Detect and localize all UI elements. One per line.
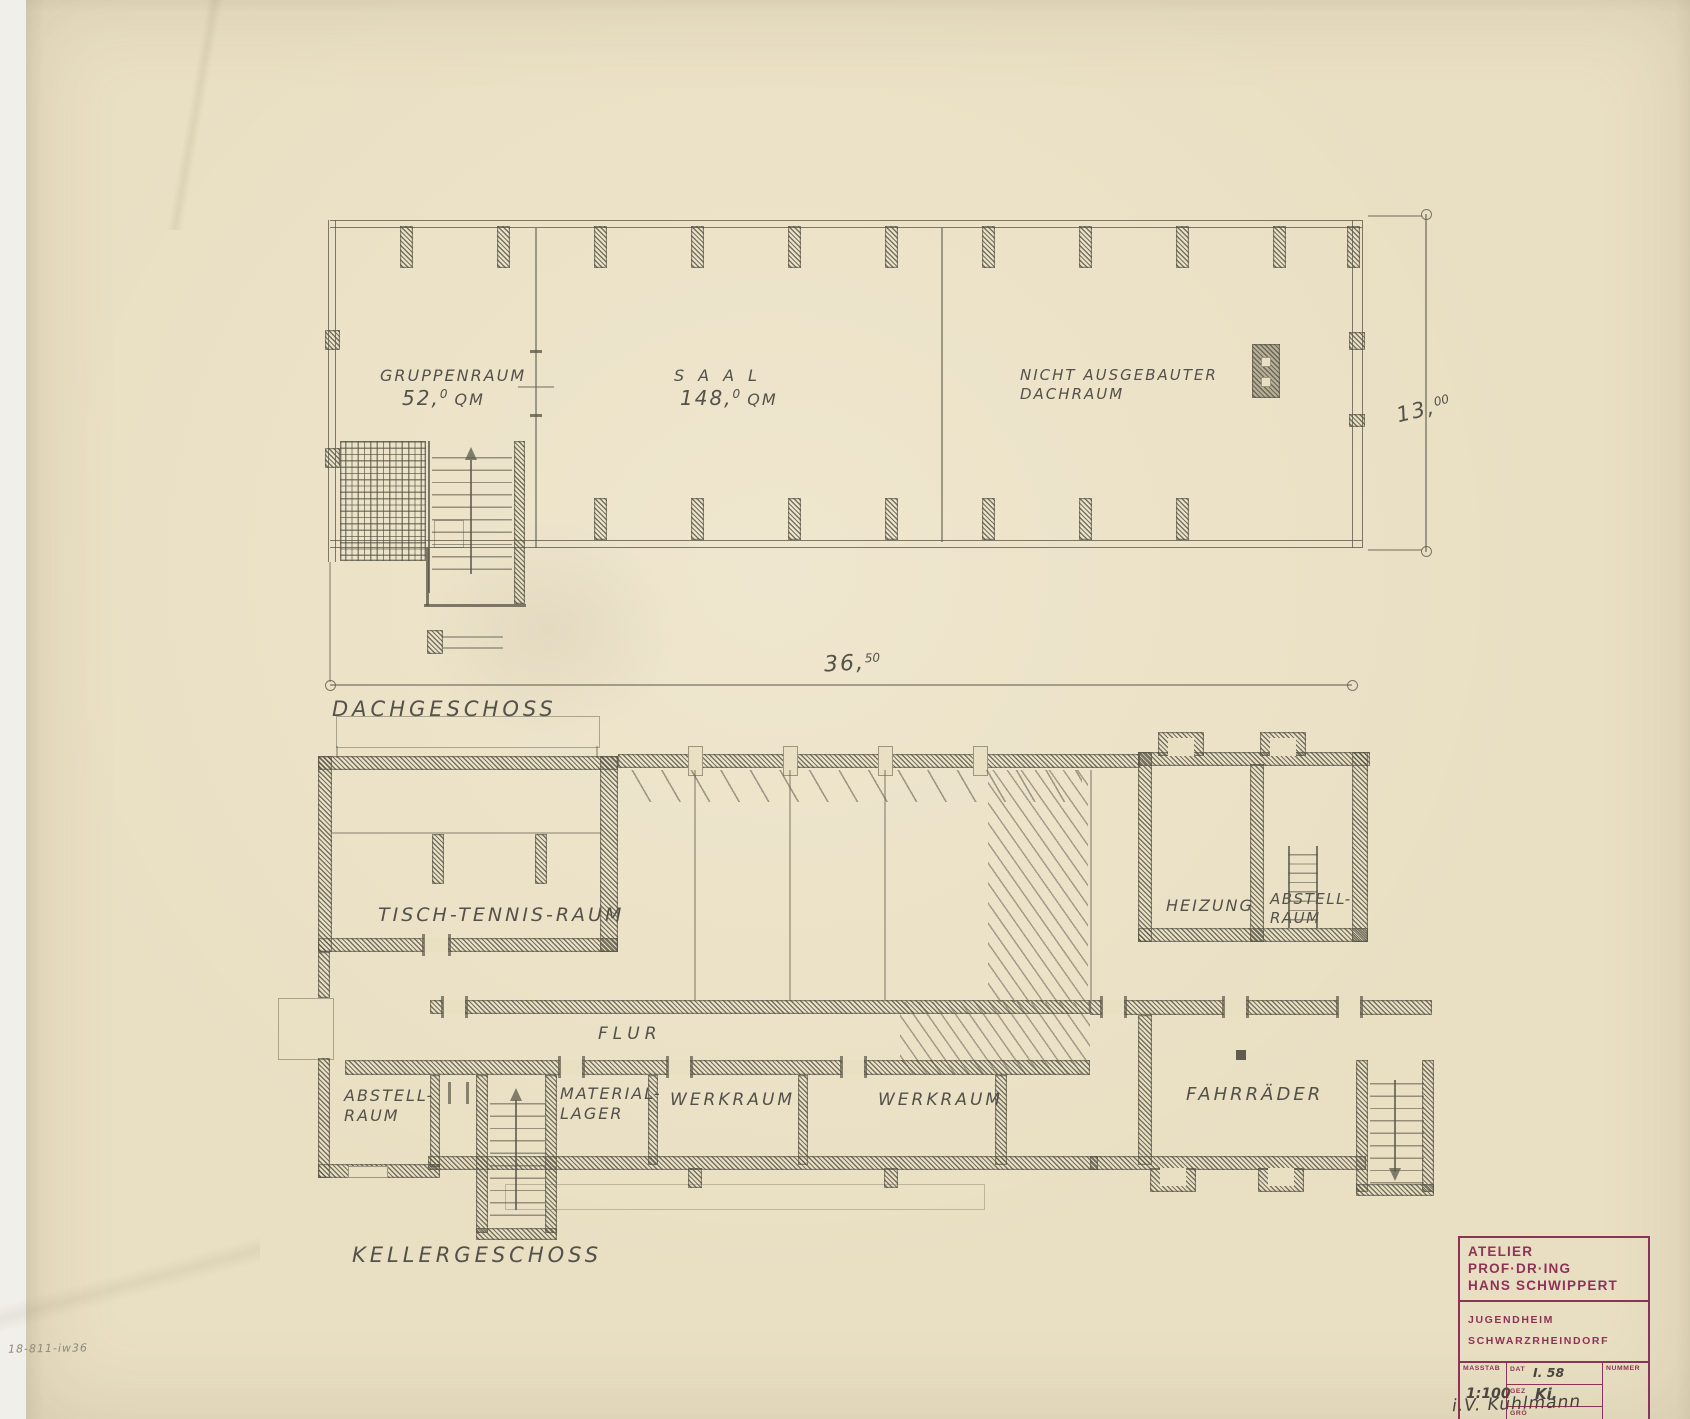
door-opening xyxy=(842,1060,864,1075)
column-line xyxy=(694,770,696,1000)
door-opening xyxy=(668,1060,690,1075)
dim-width-label: 36,50 xyxy=(823,649,881,679)
door-opening xyxy=(1224,1000,1246,1015)
stair-treads xyxy=(432,446,512,578)
door-opening xyxy=(424,938,448,952)
project-name: JUGENDHEIM SCHWARZRHEINDORF xyxy=(1460,1302,1648,1363)
pier xyxy=(325,330,340,350)
room-label-gruppenraum: GRUPPENRAUM 52,0 QM xyxy=(380,366,526,411)
studio-name: ATELIER PROF·DR·ING HANS SCHWIPPERT xyxy=(1460,1238,1648,1302)
window-opening xyxy=(348,1166,388,1178)
pier xyxy=(1176,226,1189,268)
door-opening xyxy=(1102,1000,1124,1015)
pier xyxy=(325,448,340,468)
ledger-line xyxy=(443,647,503,649)
wall xyxy=(1352,752,1368,942)
small-stair-rail xyxy=(1316,846,1318,928)
pier xyxy=(885,498,898,540)
wall xyxy=(318,952,330,998)
pier xyxy=(788,226,801,268)
door-mark xyxy=(1360,996,1363,1018)
dim-end-marker xyxy=(1421,209,1432,220)
door-mark xyxy=(448,1082,451,1104)
pier xyxy=(691,498,704,540)
pier xyxy=(400,226,413,268)
door-opening xyxy=(1338,1000,1360,1015)
pier xyxy=(885,226,898,268)
dim-ext-line xyxy=(329,562,331,682)
door-mark xyxy=(1100,996,1103,1018)
room-label-heizung: HEIZUNG xyxy=(1166,896,1254,916)
wall xyxy=(1138,752,1152,942)
light-well-inner xyxy=(1268,1168,1294,1186)
door-mark xyxy=(441,996,444,1018)
pier xyxy=(1176,498,1189,540)
room-label-material: MATERIAL- LAGER xyxy=(560,1084,662,1124)
wall xyxy=(1138,928,1368,942)
wall-tick xyxy=(530,350,542,353)
dim-end-marker xyxy=(1347,680,1358,691)
wall xyxy=(995,1075,1007,1165)
pier xyxy=(982,498,995,540)
light-well-inner xyxy=(1168,738,1194,756)
stair-wall xyxy=(476,1075,488,1233)
wall xyxy=(318,1058,330,1178)
door-mark xyxy=(1124,996,1127,1018)
upper-right-wall xyxy=(1352,220,1363,548)
room-label-dachraum: NICHT AUSGEBAUTER DACHRAUM xyxy=(1020,366,1218,404)
room-label-saal: SAAL 148,0 QM xyxy=(674,366,778,411)
title-block-stamp: ATELIER PROF·DR·ING HANS SCHWIPPERT JUGE… xyxy=(1458,1236,1650,1419)
stair-landing xyxy=(434,520,464,548)
pier xyxy=(1273,226,1286,268)
wall xyxy=(1138,1015,1152,1165)
partition-saal-dachraum xyxy=(941,228,943,542)
wall xyxy=(428,1156,1098,1170)
wall xyxy=(1090,1156,1366,1170)
stair-arrow-shaft xyxy=(470,460,472,574)
door-mark xyxy=(840,1056,843,1078)
stair-wall xyxy=(1356,1060,1368,1192)
archive-number: 18-811-iw36 xyxy=(8,1341,88,1355)
door-mark xyxy=(666,1056,669,1078)
dim-ext-line xyxy=(1368,549,1422,551)
beam-line xyxy=(332,832,600,834)
wall xyxy=(1090,1000,1432,1015)
door-mark xyxy=(558,1056,561,1078)
door-mark xyxy=(1246,996,1249,1018)
dat-label: DAT xyxy=(1507,1364,1525,1373)
door-mark xyxy=(465,996,468,1018)
room-label-abstell-left: ABSTELL- RAUM xyxy=(344,1086,434,1126)
stair-arrow-up-icon xyxy=(510,1088,522,1101)
wall xyxy=(345,1060,1090,1075)
wall xyxy=(798,1075,808,1165)
void-crosshatch xyxy=(340,441,426,561)
small-stair-treads xyxy=(1288,846,1318,926)
wall xyxy=(430,1000,1090,1014)
light-well-inner xyxy=(1270,738,1296,756)
chimney xyxy=(1252,344,1280,398)
projection-outline xyxy=(336,716,600,748)
dim-line-width xyxy=(330,684,1352,686)
projection-outline xyxy=(505,1184,985,1210)
pier xyxy=(788,498,801,540)
column-line xyxy=(1090,770,1092,1000)
chimney-flue xyxy=(1261,357,1271,367)
door-opening xyxy=(560,1060,582,1075)
stair-arrow-up-icon xyxy=(465,447,477,460)
dim-ext-line xyxy=(1368,215,1422,217)
pier xyxy=(594,226,607,268)
stair-wall xyxy=(514,441,525,604)
pier xyxy=(982,226,995,268)
dim-end-marker xyxy=(325,680,336,691)
small-stair-rail xyxy=(1288,846,1290,928)
room-label-fahrraeder: FAHRRÄDER xyxy=(1186,1084,1323,1107)
room-label-flur: FLUR xyxy=(598,1024,662,1045)
stair-wall xyxy=(1356,1184,1434,1196)
upper-top-wall xyxy=(330,220,1362,228)
stair-arrow-down-icon xyxy=(1389,1168,1401,1181)
room-label-werkraum-right: WERKRAUM xyxy=(878,1090,1003,1111)
door-mark xyxy=(582,1056,585,1078)
door-mark xyxy=(422,934,425,956)
stairwell-wall xyxy=(424,604,526,607)
nummer-label: NUMMER xyxy=(1603,1363,1648,1372)
door-mark xyxy=(466,1082,469,1104)
door-mark xyxy=(1222,996,1225,1018)
stair-wall xyxy=(1422,1060,1434,1192)
pier xyxy=(594,498,607,540)
room-label-werkraum-left: WERKRAUM xyxy=(670,1090,795,1111)
column-line xyxy=(789,770,791,1000)
column xyxy=(432,834,444,884)
ledger-line xyxy=(443,636,503,638)
dim-line-height xyxy=(1425,214,1427,552)
pier xyxy=(1349,332,1365,350)
column xyxy=(535,834,547,884)
dat-row: DAT I. 58 xyxy=(1507,1363,1602,1385)
wall xyxy=(318,756,332,952)
room-label-tischtennis: TISCH-TENNIS-RAUM xyxy=(378,904,624,928)
door-opening xyxy=(443,1000,465,1014)
pier xyxy=(497,226,510,268)
unexcavated-hatch xyxy=(988,770,1088,1002)
light-well-inner xyxy=(1160,1168,1186,1186)
pier xyxy=(1349,414,1365,427)
dim-end-marker xyxy=(1421,546,1432,557)
nummer-cell: NUMMER xyxy=(1603,1363,1648,1419)
door-mark xyxy=(864,1056,867,1078)
masstab-label: MASSTAB xyxy=(1460,1363,1506,1372)
dat-value: I. 58 xyxy=(1533,1365,1564,1380)
pier xyxy=(427,630,443,654)
wall xyxy=(318,938,618,952)
door-mark xyxy=(690,1056,693,1078)
drawing-sheet: GRUPPENRAUM 52,0 QM SAAL 148,0 QM NICHT … xyxy=(0,0,1690,1419)
wall-tick xyxy=(530,414,542,417)
pier xyxy=(691,226,704,268)
door-mark xyxy=(1336,996,1339,1018)
pier xyxy=(1079,498,1092,540)
pier xyxy=(1079,226,1092,268)
stairwell-wall xyxy=(426,548,429,606)
column xyxy=(1236,1050,1246,1060)
lower-plan-caption: KELLERGESCHOSS xyxy=(352,1242,602,1268)
stair-wall xyxy=(476,1228,557,1240)
partition-gruppenraum-saal xyxy=(535,228,537,548)
wall xyxy=(318,756,618,770)
stair-arrow-shaft xyxy=(1394,1080,1396,1172)
door-mark xyxy=(448,934,451,956)
column-line xyxy=(884,770,886,1000)
entry-bay xyxy=(278,998,334,1060)
upper-left-wall xyxy=(328,220,336,562)
chimney-flue xyxy=(1261,377,1271,387)
